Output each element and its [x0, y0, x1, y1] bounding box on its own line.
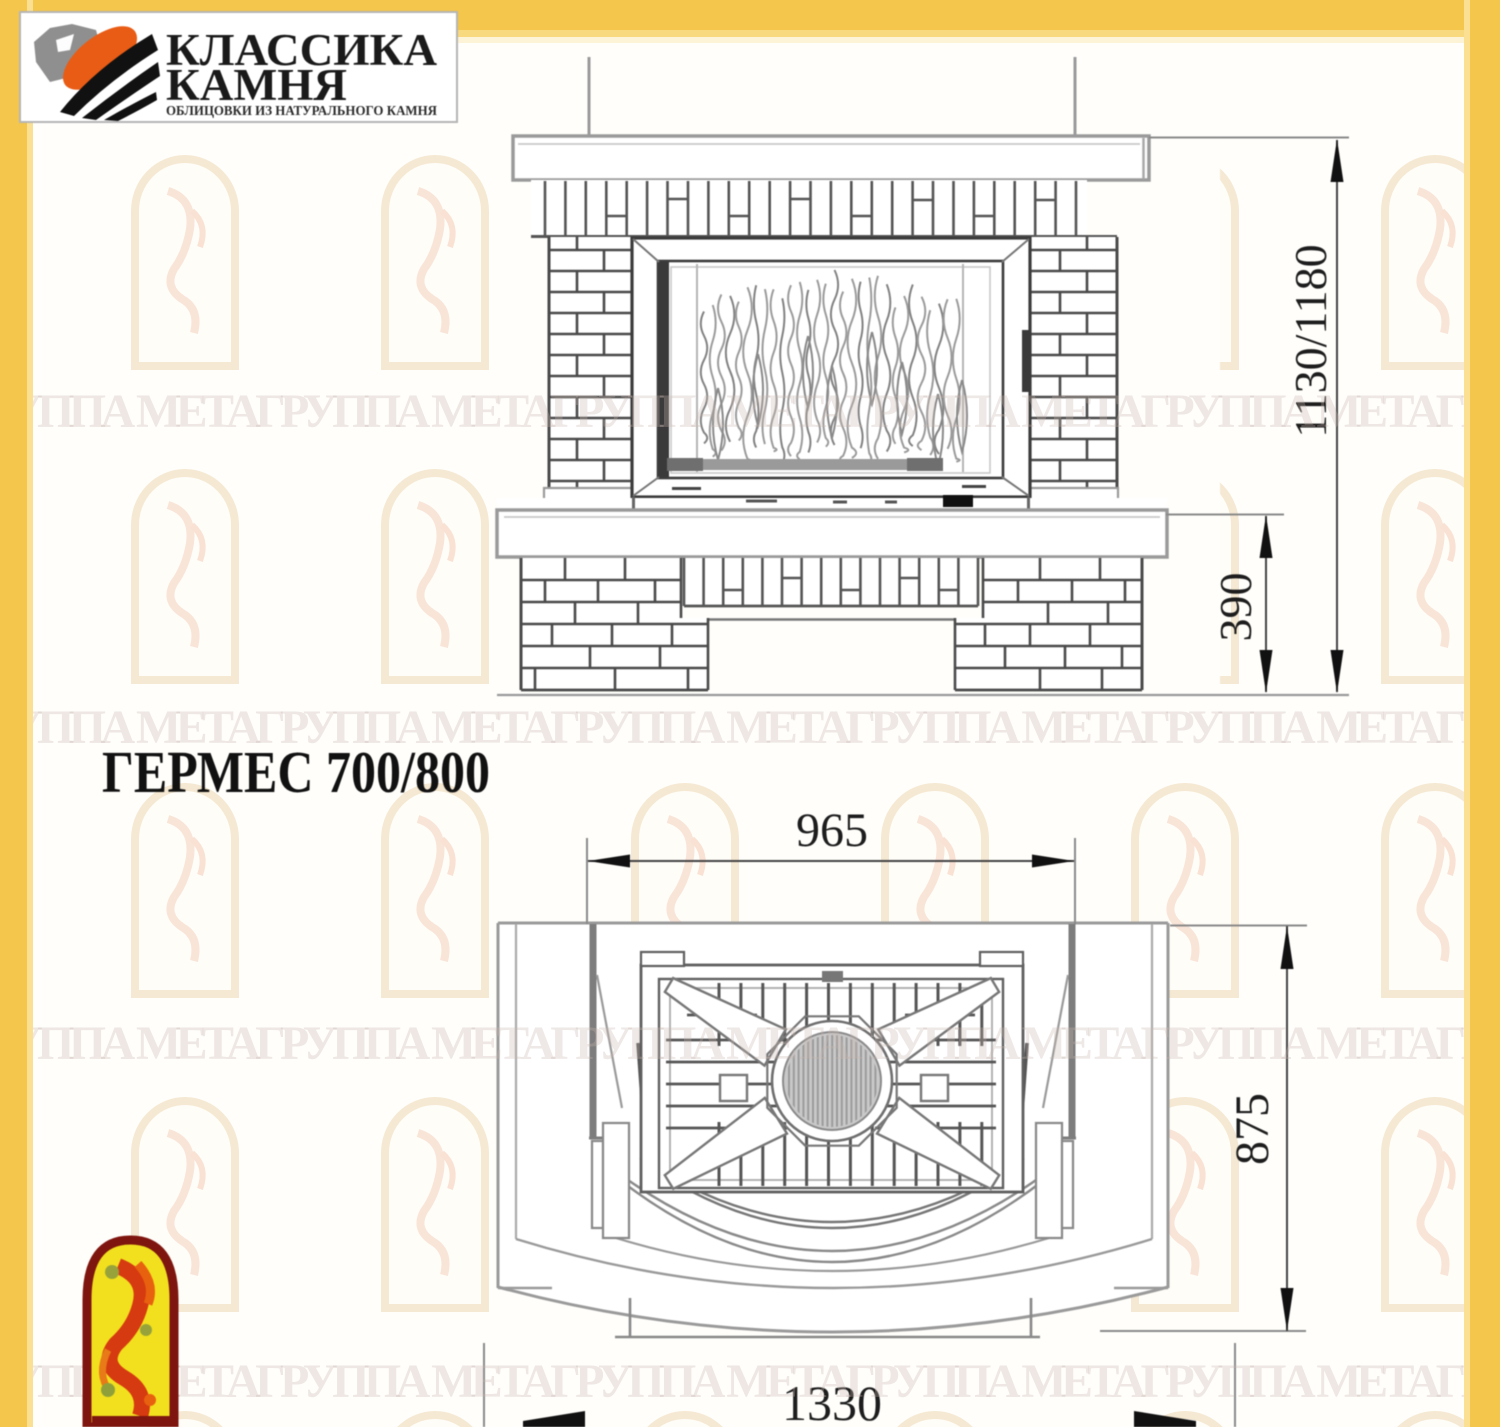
svg-text:ОБЛИЦОВКИ ИЗ НАТУРАЛЬНОГО КАМН: ОБЛИЦОВКИ ИЗ НАТУРАЛЬНОГО КАМНЯ: [166, 103, 437, 118]
